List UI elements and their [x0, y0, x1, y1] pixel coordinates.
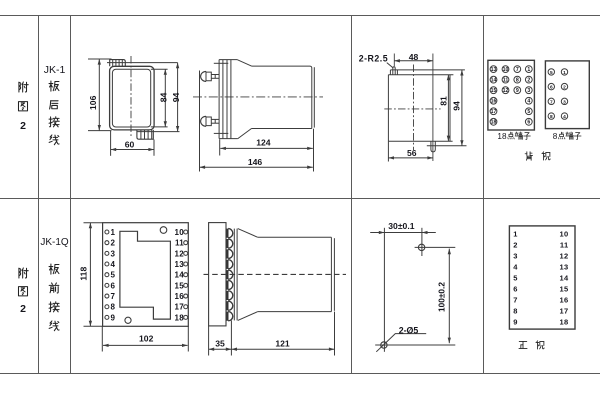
svg-text:10: 10: [503, 67, 509, 73]
svg-text:5: 5: [110, 271, 115, 280]
svg-text:60: 60: [125, 139, 135, 149]
svg-text:2: 2: [563, 85, 566, 91]
svg-text:18: 18: [491, 120, 497, 126]
svg-text:2-Ø5: 2-Ø5: [399, 325, 419, 335]
svg-text:1: 1: [527, 67, 530, 73]
svg-text:2-R2.5: 2-R2.5: [359, 54, 388, 64]
svg-text:5: 5: [513, 274, 518, 283]
svg-text:2: 2: [527, 78, 530, 84]
svg-text:18: 18: [175, 313, 185, 322]
svg-text:6: 6: [110, 281, 115, 290]
svg-text:56: 56: [407, 148, 417, 158]
svg-text:2: 2: [20, 303, 26, 315]
svg-text:12: 12: [175, 249, 185, 258]
svg-text:30±0.1: 30±0.1: [388, 221, 414, 231]
svg-text:JK-1: JK-1: [44, 64, 66, 76]
svg-text:14: 14: [175, 271, 185, 280]
svg-text:3: 3: [563, 99, 566, 105]
svg-text:13: 13: [491, 67, 497, 73]
svg-text:8: 8: [516, 78, 519, 84]
svg-text:2: 2: [513, 241, 518, 250]
svg-text:146: 146: [248, 157, 263, 167]
svg-text:11: 11: [503, 78, 509, 84]
svg-text:13: 13: [559, 263, 568, 272]
svg-text:11: 11: [560, 241, 569, 250]
svg-text:7: 7: [550, 99, 553, 105]
svg-text:121: 121: [275, 338, 290, 348]
svg-text:81: 81: [439, 96, 449, 106]
svg-text:5: 5: [527, 109, 530, 115]
svg-text:8: 8: [110, 303, 115, 312]
svg-text:106: 106: [88, 95, 98, 110]
svg-text:84: 84: [159, 93, 169, 103]
svg-text:12: 12: [503, 88, 509, 94]
svg-text:124: 124: [256, 137, 271, 147]
svg-text:100±0.2: 100±0.2: [436, 282, 446, 312]
svg-text:14: 14: [559, 274, 569, 283]
svg-text:16: 16: [491, 99, 497, 105]
svg-text:94: 94: [452, 101, 462, 111]
svg-text:12: 12: [559, 252, 568, 261]
svg-text:1: 1: [563, 70, 566, 76]
svg-text:4: 4: [513, 263, 518, 272]
svg-text:48: 48: [409, 52, 419, 62]
svg-text:7: 7: [110, 292, 115, 301]
svg-text:1: 1: [110, 228, 115, 237]
svg-text:15: 15: [491, 88, 497, 94]
svg-text:94: 94: [171, 93, 181, 103]
svg-text:6: 6: [513, 285, 518, 294]
svg-text:17: 17: [491, 109, 497, 115]
svg-text:4: 4: [563, 114, 566, 120]
svg-text:3: 3: [527, 88, 530, 94]
svg-text:1: 1: [513, 230, 518, 239]
svg-text:17: 17: [559, 307, 568, 316]
svg-text:5: 5: [550, 70, 553, 76]
svg-text:7: 7: [513, 296, 518, 305]
svg-text:4: 4: [527, 99, 530, 105]
svg-text:16: 16: [175, 292, 185, 301]
svg-text:10: 10: [559, 230, 568, 239]
svg-text:15: 15: [559, 285, 568, 294]
svg-text:14: 14: [491, 78, 497, 84]
svg-text:JK-1Q: JK-1Q: [40, 237, 69, 248]
svg-text:8: 8: [513, 307, 518, 316]
svg-text:118: 118: [79, 267, 89, 281]
svg-text:35: 35: [215, 338, 225, 348]
svg-text:10: 10: [175, 228, 185, 237]
svg-text:2: 2: [110, 239, 115, 248]
svg-text:9: 9: [513, 318, 518, 327]
svg-text:16: 16: [559, 296, 568, 305]
svg-text:3: 3: [110, 249, 115, 258]
svg-text:4: 4: [110, 260, 115, 269]
svg-text:8: 8: [553, 132, 558, 141]
svg-text:13: 13: [175, 260, 185, 269]
svg-text:18: 18: [497, 132, 507, 141]
svg-text:102: 102: [139, 334, 154, 344]
svg-text:15: 15: [175, 281, 185, 290]
svg-text:6: 6: [527, 120, 530, 126]
svg-text:9: 9: [516, 88, 519, 94]
svg-text:9: 9: [110, 313, 115, 322]
svg-text:8: 8: [550, 114, 553, 120]
svg-text:17: 17: [175, 303, 185, 312]
svg-text:18: 18: [559, 318, 568, 327]
svg-text:3: 3: [513, 252, 518, 261]
svg-text:7: 7: [516, 67, 519, 73]
svg-text:2: 2: [20, 120, 26, 132]
svg-text:6: 6: [550, 85, 553, 91]
svg-text:11: 11: [175, 239, 184, 248]
